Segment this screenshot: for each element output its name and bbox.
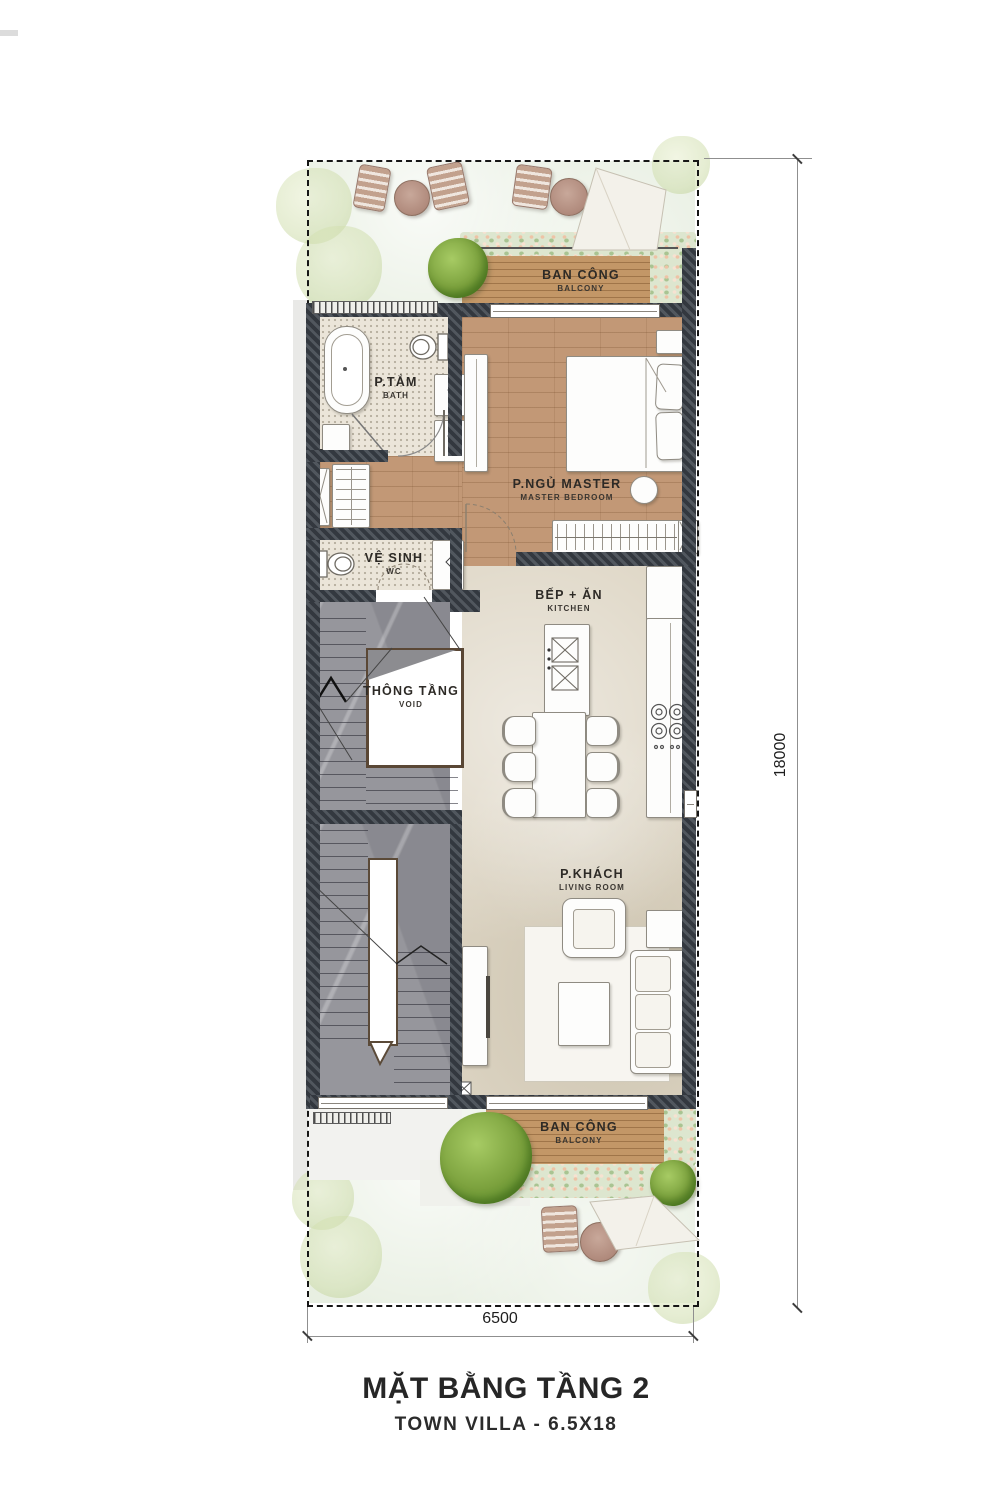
dining-table — [532, 712, 586, 818]
garden-table — [550, 178, 588, 216]
master-name-en: MASTER BEDROOM — [513, 493, 622, 502]
bedroom-balcony-window — [490, 304, 660, 318]
dining-chair — [586, 716, 620, 746]
kitchen-side-window — [684, 790, 697, 818]
room-label-void: THÔNG TẦNG VOID — [363, 684, 459, 709]
wall-left — [306, 303, 320, 1109]
room-label-balcony-top: BAN CÔNG BALCONY — [542, 268, 620, 293]
void-name: THÔNG TẦNG — [363, 684, 459, 698]
wall-bath-bedroom — [448, 303, 462, 456]
master-name: P.NGỦ MASTER — [513, 477, 622, 491]
bath-name: P.TẮM — [374, 375, 417, 389]
stair-treads-lower-left — [320, 830, 368, 1042]
kitchen-island — [544, 624, 590, 716]
bath-louver-window — [312, 301, 438, 314]
wall-right — [682, 248, 696, 1109]
exterior-sill-louver — [313, 1112, 391, 1124]
dining-chair — [502, 716, 536, 746]
room-label-bath: P.TẮM BATH — [374, 375, 417, 400]
room-label-master: P.NGỦ MASTER MASTER BEDROOM — [513, 477, 622, 502]
plan-subtitle: TOWN VILLA - 6.5X18 — [395, 1414, 618, 1436]
wall-bedroom-kitchen — [516, 552, 696, 566]
kitchen-name-en: KITCHEN — [535, 604, 602, 613]
tv-console — [462, 946, 488, 1066]
wall-stair-mid — [306, 810, 462, 824]
armchair-seat — [573, 909, 615, 949]
balcony-top-name: BAN CÔNG — [542, 268, 620, 282]
corner-print-mark — [0, 30, 18, 36]
wall-bath-bottom — [306, 450, 388, 462]
stair-treads-upper-left — [320, 618, 366, 810]
balcony-top-name-en: BALCONY — [542, 284, 620, 293]
wc-name-en: WC — [365, 567, 423, 576]
armchair — [562, 898, 626, 958]
tree-faded — [652, 136, 710, 194]
closet-shelves — [332, 464, 370, 528]
coffee-table — [558, 982, 610, 1046]
bathtub-basin — [331, 334, 363, 406]
bedside-stool — [630, 476, 658, 504]
balcony-bottom-name-en: BALCONY — [540, 1136, 618, 1145]
kitchen-name: BẾP + ĂN — [535, 588, 602, 602]
dining-chair — [502, 752, 536, 782]
floorplan-canvas: BAN CÔNG BALCONY P.TẮM BATH P.NGỦ MASTER… — [0, 0, 1000, 1500]
closet-shelf-lines — [336, 469, 366, 523]
bathtub — [324, 326, 370, 414]
side-table — [646, 910, 684, 948]
living-name-en: LIVING ROOM — [559, 883, 625, 892]
stair-railing — [368, 858, 398, 1046]
wardrobe-hangers — [557, 524, 675, 550]
room-label-living: P.KHÁCH LIVING ROOM — [559, 867, 625, 892]
garden-table — [580, 1222, 620, 1262]
wall-wc-top — [306, 528, 462, 540]
sofa-cushion — [635, 994, 671, 1030]
wall-kitchen-stub — [450, 590, 480, 612]
living-name: P.KHÁCH — [559, 867, 625, 881]
tv — [486, 976, 490, 1038]
shower-seat — [322, 424, 350, 452]
stair-treads-upper-bottom — [366, 764, 458, 810]
lounge-chair — [511, 164, 552, 211]
sofa — [630, 950, 690, 1074]
wardrobe — [552, 520, 680, 554]
planter-bottom-right — [664, 1104, 696, 1166]
void-name-en: VOID — [363, 700, 459, 709]
dining-chair — [586, 788, 620, 818]
garden-table — [394, 180, 430, 216]
room-label-kitchen: BẾP + ĂN KITCHEN — [535, 588, 602, 613]
tree-faded — [648, 1252, 720, 1324]
room-label-balcony-bottom: BAN CÔNG BALCONY — [540, 1120, 618, 1145]
pillow — [655, 412, 685, 461]
pillow — [655, 363, 685, 410]
balcony-bottom-name: BAN CÔNG — [540, 1120, 618, 1134]
wc-name: VỆ SINH — [365, 551, 423, 565]
living-balcony-slider — [486, 1096, 648, 1110]
stair-treads-lower-right — [394, 952, 450, 1092]
bedroom-console — [464, 354, 488, 472]
sofa-cushion — [635, 956, 671, 992]
dining-chair — [502, 788, 536, 818]
balcony-top-railing — [462, 247, 678, 249]
dim-line-vertical — [797, 159, 798, 1308]
bath-name-en: BATH — [374, 391, 417, 400]
living-window-left — [318, 1097, 448, 1109]
dining-chair — [586, 752, 620, 782]
wall-stair-living — [450, 824, 462, 1095]
room-label-wc: VỆ SINH WC — [365, 551, 423, 576]
dim-width-label: 6500 — [482, 1310, 518, 1328]
sofa-cushion — [635, 1032, 671, 1068]
lounge-chair — [541, 1205, 579, 1253]
plan-title: MẶT BẰNG TẦNG 2 — [362, 1372, 650, 1406]
dim-height-label: 18000 — [772, 733, 790, 778]
dim-line-horizontal — [307, 1336, 694, 1337]
wall-wc-bottom-left — [306, 590, 376, 602]
